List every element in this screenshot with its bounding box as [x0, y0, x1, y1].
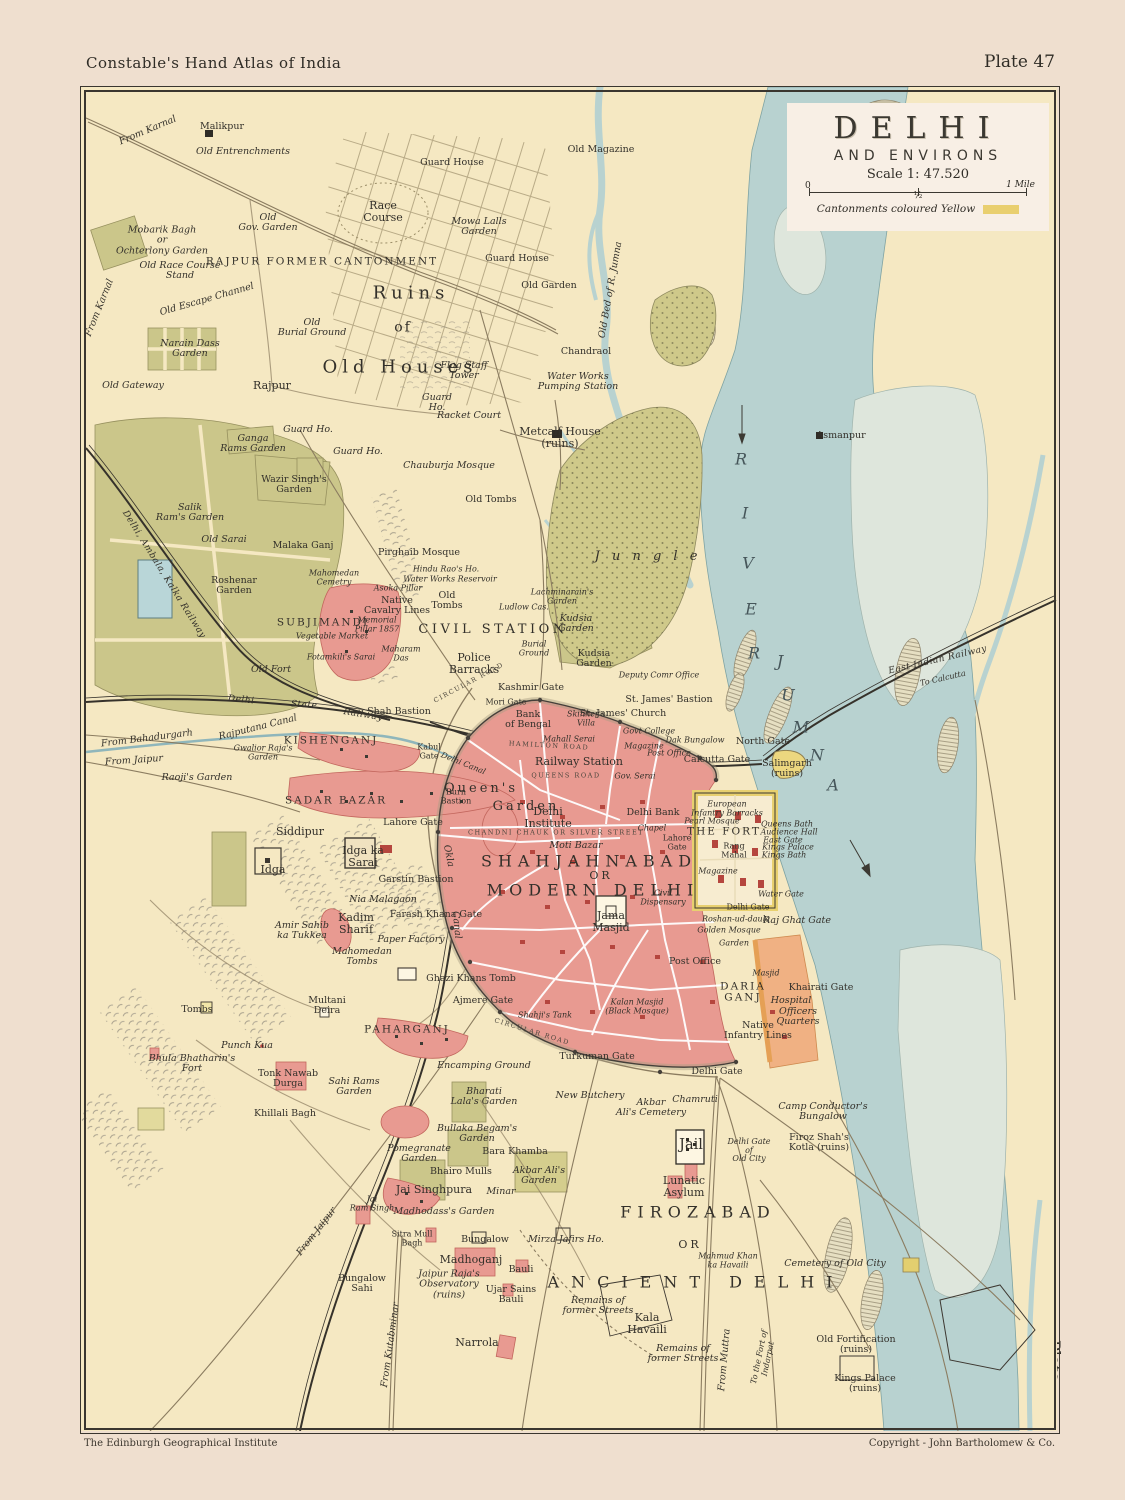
- map-label: DARIA GANJ: [720, 982, 766, 1005]
- map-label: Hospital: [771, 996, 812, 1006]
- map-label: Masjid: [752, 970, 779, 979]
- map-label: From Jaipur: [105, 754, 164, 768]
- map-label: Mahomedan Tombs: [332, 947, 392, 968]
- map-label: J: [777, 652, 783, 669]
- map-label: Asmanpur: [816, 431, 865, 441]
- map-label: Water Gate: [758, 891, 804, 900]
- map-label: Punch Kua: [221, 1041, 273, 1051]
- map-label: Guard House: [420, 158, 484, 168]
- map-label: Tombs: [181, 1005, 212, 1015]
- map-label: Jai Singhpura: [396, 1184, 472, 1196]
- map-label: Guard Ho.: [283, 425, 333, 435]
- map-label: Madhodass's Garden: [394, 1207, 495, 1217]
- map-label: RAJPUR FORMER CANTONMENT: [206, 256, 438, 267]
- map-label: Kala Havaili: [627, 1312, 666, 1336]
- map-label: Multani Deira: [308, 996, 346, 1017]
- map-label: CIVIL STATION: [418, 623, 567, 637]
- map-label: SHAHJAHNABAD: [481, 852, 697, 869]
- map-label: Ajmere Gate: [453, 996, 513, 1006]
- map-label: N: [810, 746, 824, 763]
- map-label: Chauburja Mosque: [403, 461, 495, 471]
- map-label: Amir Sahib ka Tukkea: [275, 921, 329, 942]
- map-label: Old Garden: [521, 281, 577, 291]
- map-label: Narrola: [455, 1337, 498, 1349]
- map-label: Old Magazine: [568, 145, 635, 155]
- map-label: Pomegranate Garden: [387, 1144, 451, 1165]
- map-label: Jail: [679, 1138, 703, 1154]
- map-label: Pirghaib Mosque: [378, 548, 460, 558]
- map-label: Bank of Bengal: [505, 710, 551, 731]
- map-label: Chandraol: [561, 347, 611, 357]
- map-label: Cemetery of Old City: [784, 1259, 886, 1269]
- map-label: Railway Station: [535, 756, 623, 768]
- map-label: Old Fort: [251, 665, 291, 675]
- map-label: Metcalf House (ruins): [519, 426, 600, 450]
- map-label: QUEENS ROAD: [531, 772, 600, 779]
- map-label: CHANDNI CHAUK OR SILVER STREET: [468, 829, 644, 836]
- map-label: Paper Factory: [377, 935, 444, 945]
- map-label: Sahi Rams Garden: [328, 1077, 379, 1098]
- map-label: E: [745, 600, 757, 617]
- map-label: HAMILTON ROAD: [509, 740, 590, 751]
- map-label: Racket Court: [437, 411, 501, 421]
- map-label: of: [394, 320, 412, 335]
- map-label: Flag Staff Tower: [440, 361, 487, 382]
- map-label: From Bahadurgarh: [100, 728, 193, 749]
- map-label: Mowa Lalls Garden: [451, 217, 506, 238]
- map-label: Kabul Gate: [417, 743, 441, 760]
- map-label: Remains of former Streets: [648, 1344, 719, 1365]
- map-label: Idga: [261, 864, 286, 876]
- map-label: European Infantry Barracks: [691, 800, 763, 817]
- map-label: Lunatic Asylum: [663, 1175, 705, 1199]
- map-label: Salimgarh (ruins): [762, 759, 812, 780]
- map-label: Post Office: [647, 750, 691, 759]
- map-label: Guard House: [485, 254, 549, 264]
- map-label: Delhi Gate: [726, 904, 769, 913]
- map-label: State: [290, 700, 317, 712]
- map-label: From Muttra: [717, 1328, 733, 1391]
- map-label: Delhi Canal: [439, 751, 486, 777]
- map-label: Wazir Singh's Garden: [261, 475, 327, 496]
- map-label: Old Entrenchments: [196, 147, 290, 157]
- map-label: Tonk Nawab Durga: [258, 1069, 318, 1090]
- map-label: ANCIENT DELHI: [548, 1273, 845, 1290]
- map-label: Water Works Pumping Station: [538, 372, 619, 393]
- map-label: Mahmud Khan ka Havaili: [698, 1252, 758, 1269]
- map-label: A: [827, 776, 839, 793]
- map-label: Garden: [719, 940, 749, 949]
- map-label: Malikpur: [200, 122, 244, 132]
- map-label: Old Tombs: [465, 495, 516, 505]
- map-label: Chamruti: [672, 1095, 718, 1105]
- map-label: Delhi Institute: [524, 806, 571, 830]
- map-label: Old Tombs: [431, 591, 462, 612]
- map-label: PAHARGANJ: [364, 1024, 450, 1035]
- map-label: Moti Bazar: [549, 841, 602, 851]
- map-label: M: [793, 718, 809, 735]
- map-label: Idga ka Sarai: [342, 845, 384, 869]
- map-label: Rang Mahal: [721, 842, 746, 859]
- map-label: Madhoganj: [440, 1254, 503, 1266]
- map-label: To Calcutta: [919, 670, 966, 689]
- map-label: Delhi: [227, 695, 254, 707]
- map-label: I: [742, 504, 748, 521]
- map-label: Garstin Bastion: [379, 875, 454, 885]
- map-label: Sitra Mull Bagh: [392, 1230, 433, 1247]
- map-label: FIROZABAD: [620, 1203, 775, 1220]
- map-label: Siddipur: [276, 826, 324, 838]
- map-labels-layer: From KarnalMalikpurOld EntrenchmentsGuar…: [0, 0, 1125, 1500]
- map-label: SUBJIMANDI: [277, 617, 369, 628]
- map-label: From Jaipur: [295, 1206, 339, 1258]
- map-label: Kalan Masjid (Black Mosque): [605, 998, 668, 1015]
- map-label: Old Bed of R. Jumna: [597, 241, 624, 339]
- map-label: Pearl Mosque: [684, 818, 740, 827]
- map-label: Delhi Gate: [691, 1067, 742, 1077]
- map-label: Bhairo Mulls: [430, 1167, 492, 1177]
- map-label: Old Gateway: [102, 381, 164, 391]
- map-label: Golden Mosque: [697, 927, 760, 936]
- map-label: Native Cavalry Lines: [364, 596, 430, 617]
- map-label: R: [735, 450, 747, 467]
- map-label: Fotamkili's Sarai: [307, 654, 375, 663]
- map-label: Ganga Rams Garden: [220, 434, 286, 455]
- map-label: Turkuman Gate: [559, 1052, 634, 1062]
- map-label: Dak Bungalow: [666, 737, 725, 746]
- map-label: Old Escape Channel: [159, 282, 255, 319]
- map-label: St. James' Bastion: [625, 695, 712, 705]
- map-label: Kadim Sharif: [338, 912, 374, 936]
- map-label: Old Fortification (ruins): [816, 1335, 895, 1356]
- map-label: THE FORT: [687, 826, 761, 837]
- map-label: Race Course: [363, 200, 403, 224]
- map-label: Ruins: [373, 283, 450, 302]
- map-label: OR: [678, 1239, 701, 1251]
- map-label: Civil Dispensary: [640, 889, 685, 906]
- map-label: Narain Dass Garden: [160, 339, 219, 360]
- map-label: Ujar Sains Bauli: [486, 1285, 536, 1306]
- map-label: To the Fort of Indarpat: [750, 1329, 778, 1386]
- map-label: Post Office: [669, 957, 721, 967]
- map-label: Hindu Rao's Ho.: [413, 566, 479, 575]
- map-label: Bungalow Sahi: [338, 1274, 386, 1295]
- map-label: Mori Gate: [485, 699, 526, 708]
- map-label: Deputy Comr Office: [619, 672, 700, 681]
- map-label: Rajpur: [253, 380, 291, 392]
- map-label: Lahore Gate: [383, 818, 443, 828]
- map-label: SADAR BAZAR: [285, 795, 387, 806]
- map-label: Magazine: [698, 868, 738, 877]
- map-label: Bullaka Begam's Garden: [437, 1124, 517, 1145]
- map-label: Gov. Serai: [614, 773, 655, 782]
- map-label: New Butchery: [556, 1091, 625, 1101]
- map-label: Kashmir Gate: [498, 683, 564, 693]
- map-label: Shahji's Tank: [518, 1012, 572, 1021]
- map-label: Jai Ram Singh: [350, 1195, 395, 1212]
- map-label: Asoka Pillar: [374, 585, 423, 594]
- map-label: U: [781, 686, 794, 703]
- map-label: Calcutta Gate: [684, 755, 750, 765]
- map-label: Ludlow Cas.: [499, 604, 549, 613]
- map-label: East Indian Railway: [888, 645, 988, 677]
- map-label: Encamping Ground: [437, 1061, 531, 1071]
- map-label: Guard Ho.: [333, 447, 383, 457]
- map-label: Camp Conductor's Bungalow: [778, 1102, 867, 1123]
- map-label: North Gate: [736, 737, 790, 747]
- map-label: Remains of former Streets: [563, 1296, 634, 1317]
- map-label: Old Gov. Garden: [238, 213, 297, 234]
- map-label: From Kutabminar: [380, 1302, 402, 1388]
- map-plate-page: Constable's Hand Atlas of India Plate 47: [0, 0, 1125, 1500]
- map-label: Maharam Das: [381, 645, 420, 662]
- map-label: Delhi, Ambala, Kalka Railway: [119, 509, 206, 640]
- map-label: CIRCULAR ROAD: [493, 1017, 570, 1047]
- map-label: Bauli: [509, 1265, 534, 1275]
- map-label: Old Sarai: [201, 535, 246, 545]
- map-label: Bungalow: [461, 1235, 509, 1245]
- map-label: Delhi Gate of Old City: [727, 1138, 770, 1164]
- map-label: Bhula Bhatharin's Fort: [149, 1054, 236, 1075]
- map-label: Akbar Ali's Garden: [513, 1166, 565, 1187]
- map-label: From Karnal: [118, 114, 178, 147]
- map-label: Khairati Gate: [789, 983, 854, 993]
- map-label: Jama Masjid: [592, 910, 629, 934]
- map-label: Okla: [441, 844, 456, 868]
- map-label: Canal: [450, 911, 463, 940]
- map-label: Salik Ram's Garden: [156, 503, 224, 524]
- map-label: Old Burial Ground: [278, 318, 347, 339]
- map-label: Farash Khana Gate: [390, 910, 482, 920]
- map-label: Kudsia Garden: [558, 614, 594, 635]
- map-label: J u n g l e: [595, 550, 702, 564]
- map-label: From Karnal: [84, 278, 116, 338]
- map-label: Shah Bastion: [367, 707, 431, 717]
- map-label: Vegetable Market: [296, 633, 368, 642]
- map-label: Bharati Lala's Garden: [451, 1087, 518, 1108]
- map-label: Firoz Shah's Kotla (ruins): [789, 1133, 849, 1154]
- map-label: Ghazi Khans Tomb: [426, 974, 516, 984]
- map-label: R: [748, 644, 760, 661]
- map-label: Kudsia Garden: [576, 649, 612, 670]
- map-label: Jaipur Raja's Observatory (ruins): [418, 1270, 479, 1301]
- map-label: Skinner's Villa: [567, 710, 605, 727]
- map-label: Raj Ghat Gate: [763, 916, 831, 926]
- map-label: Khillali Bagh: [254, 1109, 316, 1119]
- map-label: Bara Khamba: [482, 1147, 548, 1157]
- map-label: Burial Ground: [519, 640, 549, 657]
- map-label: Nia Malagaon: [349, 895, 417, 905]
- map-label: Gwalior Raja's Garden: [234, 744, 293, 761]
- map-label: Burn Bastion: [441, 788, 472, 805]
- map-label: Kings Bath: [762, 852, 806, 861]
- map-label: Malaka Ganj: [273, 541, 334, 551]
- map-label: Lahore Gate: [663, 834, 692, 851]
- map-label: Raoji's Garden: [162, 773, 233, 783]
- map-label: Mobarik Bagh or Ochterlony Garden: [116, 226, 208, 257]
- map-label: Roshenar Garden: [211, 576, 257, 597]
- map-label: Delhi Bank: [627, 808, 680, 818]
- map-label: Roshan-ud-daula: [702, 916, 770, 925]
- map-label: Kings Palace (ruins): [834, 1374, 896, 1395]
- map-label: KISHENGANJ: [284, 735, 379, 746]
- map-label: Mirza Jafirs Ho.: [528, 1235, 604, 1245]
- map-label: Native Infantry Lines: [724, 1021, 792, 1042]
- map-label: Mahomedan Cemetry: [309, 569, 359, 586]
- map-label: Minar: [486, 1187, 515, 1197]
- map-label: V: [742, 554, 754, 571]
